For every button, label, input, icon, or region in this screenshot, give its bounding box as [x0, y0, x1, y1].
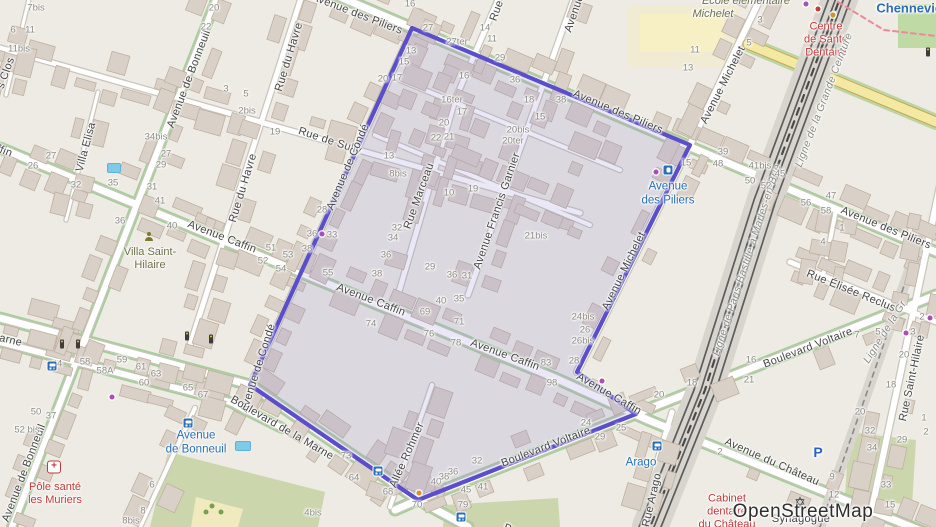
house-number: 3 — [223, 84, 228, 95]
stop-avenue-de-bonneuil: Avenuede Bonneuil — [166, 430, 227, 457]
house-number: 52 bis — [14, 425, 39, 436]
poi-dot — [804, 2, 809, 7]
poi-villa-saint-hilaire: Villa Saint-Hilaire — [124, 246, 176, 272]
house-number: 69 — [420, 307, 431, 318]
house-number: 15 — [885, 500, 896, 511]
tree-icon — [219, 510, 224, 515]
house-number: 5 — [243, 89, 248, 100]
house-number: 27 — [161, 149, 172, 160]
house-number: 6 — [149, 480, 154, 491]
house-number: 17 — [392, 73, 403, 84]
train-station-icon — [663, 165, 674, 176]
house-number: 5 — [746, 38, 751, 49]
street-label: Avenue des Piliers — [839, 204, 933, 251]
house-number: 34bis — [145, 132, 168, 143]
house-number: 36 — [448, 467, 459, 478]
house-number: 13 — [406, 46, 417, 57]
street-label: Boulevard Voltaire — [502, 522, 594, 527]
house-number: 20ter — [502, 136, 524, 147]
house-number: 38 — [372, 269, 383, 280]
house-number: 60 — [139, 378, 150, 389]
house-number: 6 — [10, 25, 15, 36]
city-label-chennevieres: Chennevières — [876, 1, 936, 16]
house-number: 24 — [581, 418, 592, 429]
house-number: 1 — [921, 413, 926, 424]
house-number: 29 — [156, 160, 167, 171]
poi-dot — [928, 316, 933, 321]
house-number: 41bis — [749, 161, 772, 172]
street-label: Avenue Caffin — [186, 218, 258, 255]
house-number: 28 — [317, 205, 328, 216]
house-number: 24bis — [572, 312, 595, 323]
street-label: Avenue Caffin — [469, 337, 541, 373]
swimming-pool — [107, 163, 121, 173]
street-label: Rue Arago — [640, 472, 664, 527]
house-number: 39 — [718, 147, 729, 158]
house-number: 16 — [459, 71, 470, 82]
house-number: 28 — [569, 356, 580, 367]
traffic-signal-icon — [209, 335, 213, 344]
social-facility-icon — [144, 232, 154, 242]
poi-dot — [904, 331, 909, 336]
house-number: 19 — [468, 184, 479, 195]
house-number: 18 — [524, 95, 535, 106]
poi-dot — [417, 491, 422, 496]
house-number: 22 — [431, 133, 442, 144]
house-number: 16ter — [441, 95, 463, 106]
street-label: Avenue du Château — [723, 436, 821, 489]
house-number: 13 — [683, 63, 694, 74]
house-number: 25 — [616, 423, 627, 434]
house-number: 51 — [266, 243, 277, 254]
house-number: 79 — [458, 500, 469, 511]
house-number: 3 — [910, 327, 915, 338]
house-number: 64 — [349, 473, 360, 484]
street-label: Avenue Francis Garnier — [562, 0, 613, 34]
bus-stop-icon — [47, 361, 58, 372]
street-label: Avenue de Bonneuil — [165, 28, 213, 129]
house-number: 37 — [46, 411, 57, 422]
house-number: 26bis — [572, 336, 595, 347]
house-number: 16 — [746, 355, 757, 366]
house-number: 35 — [108, 178, 119, 189]
house-number: 11 — [690, 45, 700, 56]
house-number: 41 — [478, 482, 489, 493]
house-number: 1 — [839, 223, 844, 234]
street-label: Avenue des Piliers — [310, 0, 404, 37]
house-number: 35 — [454, 294, 465, 305]
house-number: 7 — [854, 330, 859, 341]
house-number: 8bis — [122, 516, 139, 527]
house-number: 8bis — [389, 169, 406, 180]
house-number: 67 — [198, 390, 209, 401]
house-number: 20 — [855, 407, 866, 418]
house-number: 45 — [461, 485, 472, 496]
house-number: 11 — [487, 34, 497, 45]
street-label: Avenue des Piliers — [571, 88, 664, 137]
house-number: 63 — [151, 369, 162, 380]
bus-stop-icon — [652, 441, 663, 452]
house-number: 8 — [140, 506, 145, 517]
house-number: 11 — [25, 25, 35, 36]
street-label: Boulevard de la Marne — [228, 394, 335, 463]
house-number: 15 — [535, 112, 546, 123]
poi-ecole-line1: École élémentaire — [702, 0, 790, 7]
tree-icon — [204, 510, 209, 515]
house-number: 20 — [378, 74, 389, 85]
street-label: Avenue Caffin — [335, 281, 407, 318]
house-number: 31 — [462, 271, 473, 282]
street-label: Avenue Michelet — [600, 230, 648, 312]
house-number: 48 — [713, 159, 724, 170]
poi-dot — [110, 395, 115, 400]
house-number: 13 — [384, 151, 395, 162]
poi-dot — [600, 379, 605, 384]
house-number: 33 — [881, 480, 892, 491]
house-number: 33 — [327, 230, 338, 241]
street-label: Rue Marceau — [488, 0, 523, 23]
house-number: 21bis — [525, 231, 548, 242]
street-label: Boulevard Voltaire — [762, 325, 855, 370]
osm-attribution[interactable]: OpenStreetMap — [733, 501, 874, 523]
house-number: 21 — [444, 132, 455, 143]
house-number: 22 — [201, 22, 212, 33]
house-number: 52 — [761, 181, 772, 192]
house-number: 4bis — [304, 508, 321, 519]
house-number: 20 — [899, 350, 910, 361]
house-number: 52 — [258, 256, 269, 267]
house-number: 98 — [547, 378, 558, 389]
poi-dot — [831, 13, 836, 18]
house-number: 59 — [117, 355, 128, 366]
stop-avenue-des-piliers: Avenuedes Piliers — [641, 181, 694, 208]
house-number: 40 — [167, 221, 178, 232]
first-aid-icon — [47, 461, 61, 474]
house-number: 55 — [323, 268, 334, 279]
tree-icon — [210, 504, 215, 509]
house-number: 78 — [451, 338, 462, 349]
house-number: 74 — [366, 319, 377, 330]
house-number: 36 — [307, 229, 318, 240]
house-number: 2 — [919, 312, 924, 323]
house-number: 2 — [923, 427, 928, 438]
house-number: 71 — [454, 317, 465, 328]
street-label: Avenue Caffin — [0, 122, 14, 159]
house-number: 36 — [381, 250, 392, 261]
house-number: 20bis — [507, 125, 530, 136]
house-number: 31 — [147, 182, 158, 193]
house-number: 45 — [775, 169, 786, 180]
house-number: 32 — [71, 180, 82, 191]
poi-dot — [320, 232, 325, 237]
house-number: 29 — [495, 53, 506, 64]
house-number: 4 — [820, 237, 825, 248]
house-number: 36 — [447, 270, 458, 281]
house-number: 26 — [28, 161, 39, 172]
street-label: Rue du Havre — [273, 21, 305, 93]
house-number: 29 — [897, 435, 908, 446]
bus-stop-icon — [373, 466, 384, 477]
house-number: 2bis — [238, 106, 255, 117]
street-label: Avenue de Bonneuil — [0, 422, 48, 523]
house-number: 20 — [439, 118, 450, 129]
house-number: 47 — [826, 191, 837, 202]
house-number: 41 — [155, 196, 166, 207]
house-number: 3 — [757, 15, 762, 26]
parking-icon: P — [813, 444, 822, 460]
house-number: 20 — [209, 3, 220, 14]
poi-ecole-line2: Michelet — [693, 8, 734, 20]
street-label: Avenue Caffin — [575, 371, 644, 418]
map-canvas[interactable]: Villa Saint-Hilaire Pôle santéles Murier… — [0, 0, 936, 527]
street-label: Rue Saint-Hilaire — [897, 334, 927, 423]
street-label: Allée Rohmer — [387, 420, 427, 489]
house-number: 36 — [115, 216, 126, 227]
house-number: 27ter — [446, 37, 468, 48]
house-number: 12 — [829, 490, 840, 501]
house-number: 58A — [97, 366, 114, 377]
street-label: Rue du Havre — [227, 152, 259, 224]
house-number: 15 — [399, 57, 410, 68]
house-number: 29 — [425, 262, 436, 273]
house-number: 27 — [423, 23, 434, 34]
poi-dot — [654, 170, 659, 175]
house-number: 20 — [654, 390, 665, 401]
house-number: 10 — [444, 188, 455, 199]
house-number: 17 — [457, 107, 468, 118]
house-number: 34 — [867, 443, 878, 454]
house-number: 50 — [745, 176, 756, 187]
house-number: 32 — [865, 426, 876, 437]
house-number: 65 — [183, 383, 194, 394]
house-number: 9 — [829, 472, 834, 483]
poi-dot — [816, 7, 821, 12]
house-number: 68 — [383, 487, 394, 498]
stop-arago: Arago — [626, 456, 657, 470]
house-number: 34 — [388, 233, 399, 244]
street-label: Avenue Michelet — [698, 44, 748, 126]
house-number: 16 — [405, 0, 416, 10]
house-number: 21 — [744, 375, 755, 386]
street-label: Boulevard Voltaire — [500, 424, 593, 469]
house-number: 14 — [480, 23, 491, 34]
house-number: 26 — [580, 325, 591, 336]
house-number: 50 — [31, 407, 42, 418]
street-label: Rue Élisée Reclus — [805, 268, 898, 315]
house-number: 19 — [270, 127, 281, 138]
traffic-signal-icon — [60, 340, 64, 349]
house-number: 11bis — [8, 44, 30, 55]
railway-label: Ligne de Paris-Bastille à Marles-en-Brie — [710, 163, 784, 358]
house-number: 29 — [595, 432, 606, 443]
map-labels-layer: Villa Saint-Hilaire Pôle santéles Murier… — [0, 0, 936, 527]
house-number: 54 — [276, 264, 287, 275]
street-label: Avenue Francis Garnier — [471, 151, 522, 271]
swimming-pool — [235, 441, 251, 451]
house-number: 5 — [875, 327, 880, 338]
house-number: 18 — [886, 380, 897, 391]
traffic-signal-icon — [926, 48, 930, 57]
street-label: Villa Elisa — [74, 121, 99, 173]
house-number: 32 — [472, 456, 483, 467]
house-number: 40 — [436, 296, 447, 307]
house-number: 73 — [341, 451, 352, 462]
traffic-signal-icon — [76, 340, 80, 349]
house-number: 36 — [510, 75, 521, 86]
house-number: 76 — [424, 329, 435, 340]
house-number: 58 — [821, 206, 832, 217]
house-number: 58 — [80, 357, 91, 368]
bus-stop-icon — [183, 418, 194, 429]
street-label: s Clos — [0, 56, 17, 91]
house-number: 15 — [681, 158, 692, 169]
street-label: Rue Marceau — [402, 161, 437, 230]
house-number: 70 — [412, 500, 423, 511]
house-number: 27 — [46, 151, 57, 162]
street-label: Boulevard de la Marne — [0, 311, 23, 349]
poi-pole-sante: Pôle santéles Muriers — [28, 481, 82, 507]
house-number: 61 — [136, 362, 147, 373]
house-number: 56 — [801, 198, 812, 209]
house-number: 2 — [717, 447, 722, 458]
house-number: 18 — [687, 378, 698, 389]
house-number: 83 — [541, 358, 552, 369]
bus-stop-icon — [456, 512, 467, 523]
house-number: 7bis — [27, 3, 44, 14]
house-number: 38 — [556, 95, 567, 106]
traffic-signal-icon — [185, 332, 189, 341]
house-number: 38 — [302, 244, 313, 255]
house-number: 53 — [283, 250, 294, 261]
